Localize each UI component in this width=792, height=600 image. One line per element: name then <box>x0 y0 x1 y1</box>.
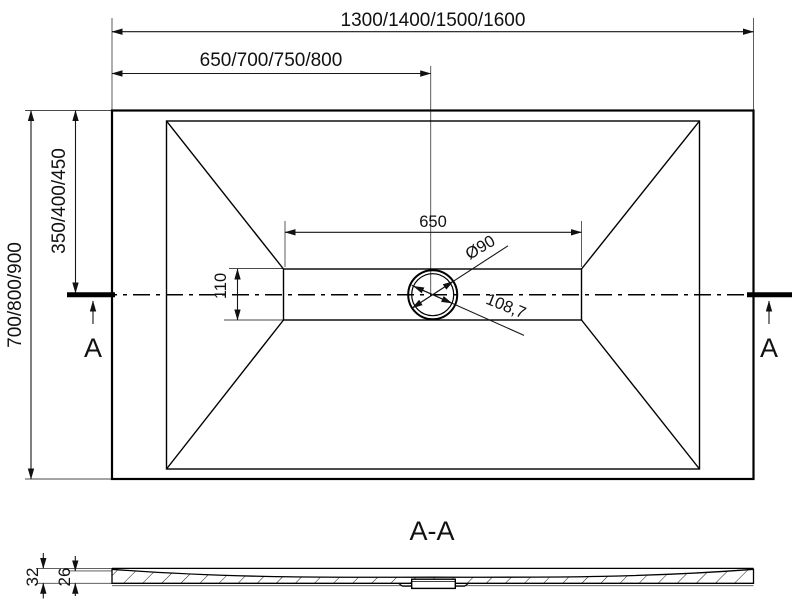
slope-diagonal-bottom-right <box>582 320 700 469</box>
slope-diagonal-bottom-left <box>167 320 284 469</box>
shower-tray-technical-drawing: 1300/1400/1500/1600 650/700/750/800 700/… <box>0 0 792 600</box>
label-drain-diameter: Ø90 <box>462 232 498 263</box>
label-half-depth: 350/400/450 <box>49 148 70 254</box>
label-half-width: 650/700/750/800 <box>200 50 343 71</box>
label-total-thickness: 32 <box>23 568 42 587</box>
label-channel-length: 650 <box>419 213 447 231</box>
label-overall-depth: 700/800/900 <box>5 242 26 348</box>
section-view: A-A 32 26 <box>23 516 754 599</box>
label-base-thickness: 26 <box>55 568 74 587</box>
slope-diagonal-top-right <box>582 121 700 269</box>
section-title: A-A <box>409 516 454 546</box>
label-section-a-right: A <box>760 333 778 363</box>
drain-cover-section <box>412 579 456 588</box>
plan-view: 1300/1400/1500/1600 650/700/750/800 700/… <box>5 10 792 479</box>
label-overall-width: 1300/1400/1500/1600 <box>341 10 526 31</box>
drawing-canvas: 1300/1400/1500/1600 650/700/750/800 700/… <box>0 0 792 600</box>
label-channel-width: 110 <box>212 273 230 299</box>
slope-diagonal-top-left <box>167 121 284 269</box>
label-section-a-left: A <box>84 333 102 363</box>
